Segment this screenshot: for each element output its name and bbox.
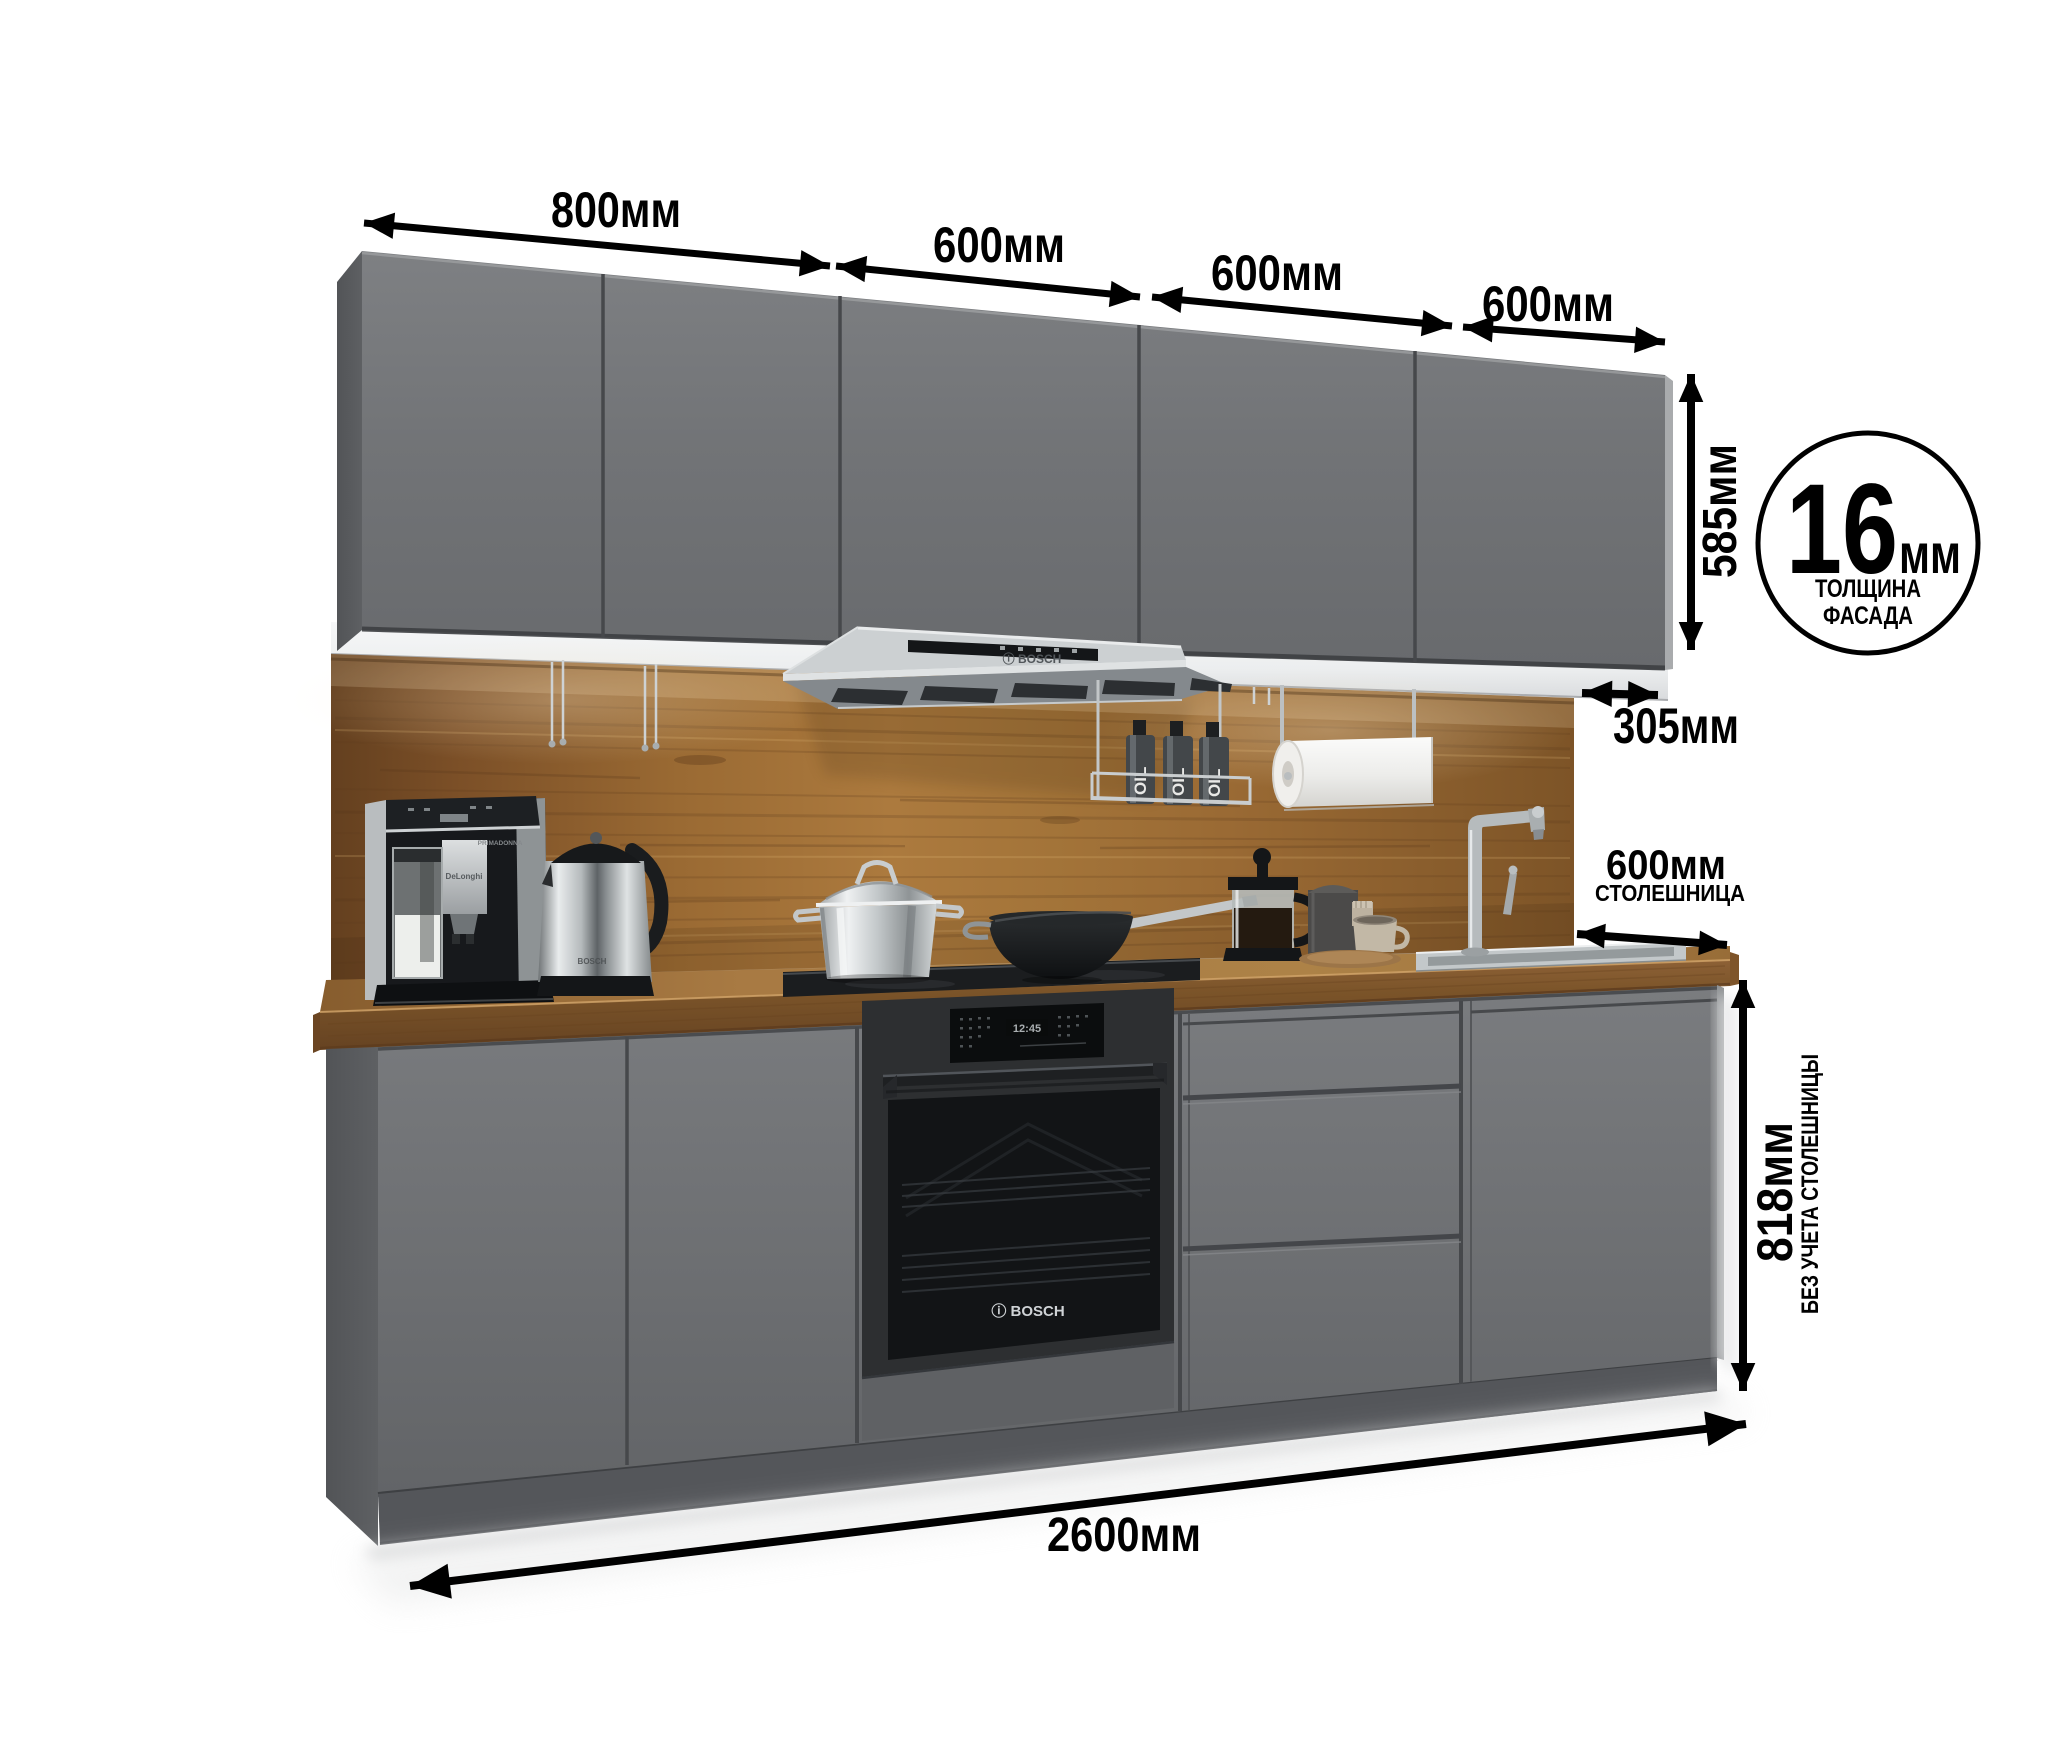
svg-text:ⓘ BOSCH: ⓘ BOSCH [991,1302,1064,1320]
svg-text:ТОЛЩИНА: ТОЛЩИНА [1815,575,1921,603]
svg-text:PRIMADONNA: PRIMADONNA [478,840,523,847]
svg-text:305мм: 305мм [1613,698,1739,754]
svg-text:DeLonghi: DeLonghi [446,872,483,881]
svg-text:OIL: OIL [1131,767,1150,795]
svg-text:600мм: 600мм [1211,245,1343,301]
svg-text:OIL: OIL [1169,768,1188,796]
svg-text:ⓘ BOSCH: ⓘ BOSCH [1003,651,1062,666]
svg-text:600мм: 600мм [1482,276,1614,332]
svg-text:800мм: 800мм [551,182,681,238]
svg-text:OIL: OIL [1205,769,1224,797]
svg-text:818мм: 818мм [1747,1122,1803,1262]
svg-text:585мм: 585мм [1694,444,1747,578]
svg-text:BOSCH: BOSCH [578,957,607,966]
svg-text:2600мм: 2600мм [1047,1509,1201,1562]
svg-text:12:45: 12:45 [1013,1023,1041,1035]
svg-text:БЕЗ УЧЕТА СТОЛЕШНИЦЫ: БЕЗ УЧЕТА СТОЛЕШНИЦЫ [1797,1054,1824,1314]
svg-text:СТОЛЕШНИЦА: СТОЛЕШНИЦА [1595,880,1745,906]
svg-text:600мм: 600мм [933,217,1065,273]
svg-text:ФАСАДА: ФАСАДА [1823,602,1913,630]
